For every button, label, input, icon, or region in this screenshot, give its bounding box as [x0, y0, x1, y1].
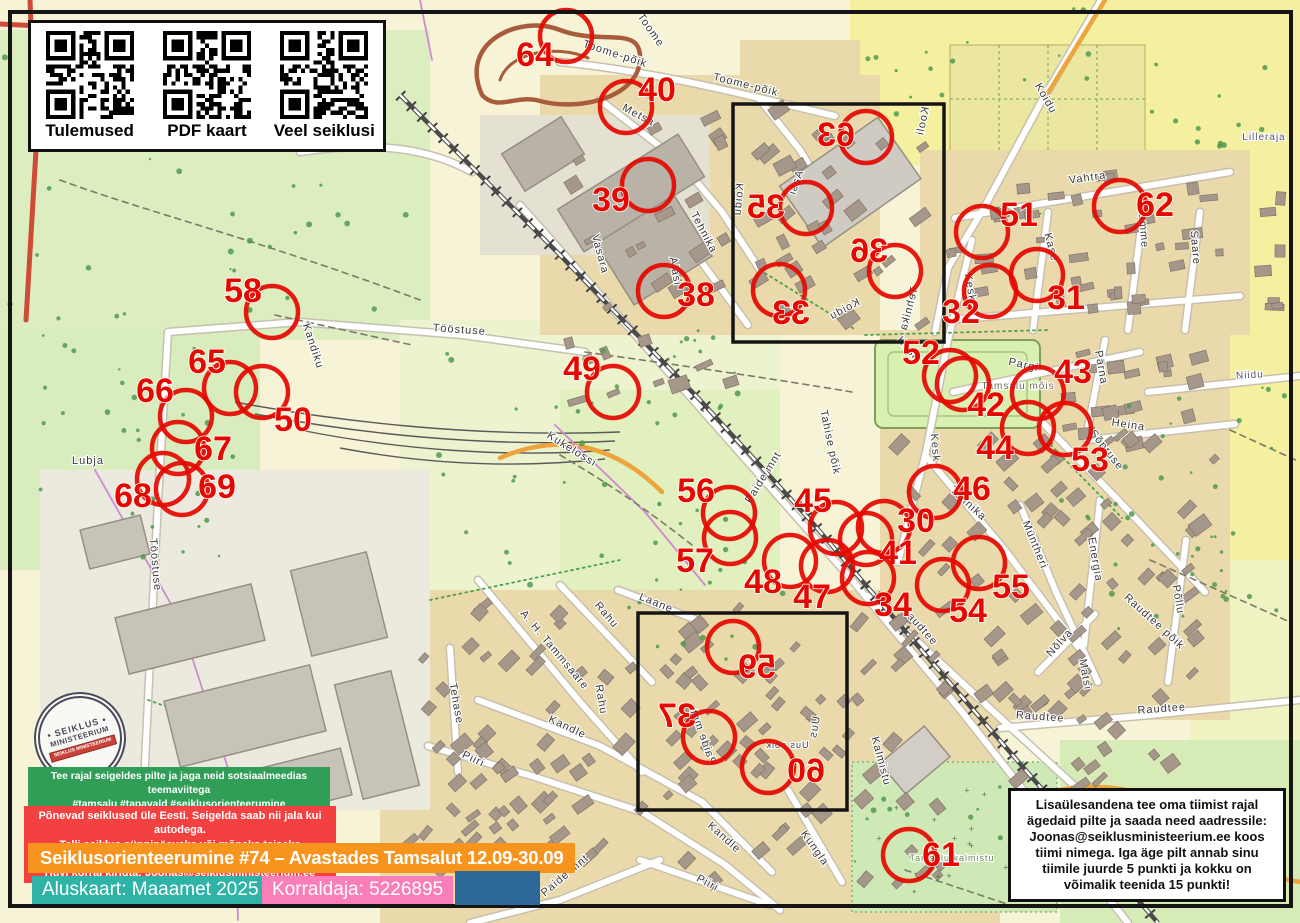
basemap-credit-bar: Aluskaart: Maaamet 2025: [32, 876, 269, 904]
control-number-51: 51: [1000, 196, 1038, 234]
control-number-38: 38: [677, 276, 715, 314]
social-line1: Tee rajal seigeldes pilte ja jaga neid s…: [32, 770, 326, 798]
control-number-39: 39: [592, 181, 630, 219]
control-number-65: 65: [188, 343, 226, 381]
control-number-60: 60: [787, 752, 825, 790]
blue-cover-rect: [455, 871, 540, 905]
control-number-43: 43: [1054, 353, 1092, 391]
qr-item-results: Tulemused: [36, 31, 144, 141]
control-number-36: 36: [850, 232, 888, 270]
control-number-68: 68: [114, 477, 152, 515]
qr-panel: Tulemused PDF kaart Veel seiklusi: [28, 20, 386, 152]
control-number-61: 61: [922, 836, 960, 874]
control-number-44: 44: [976, 429, 1014, 467]
control-number-67: 67: [194, 430, 232, 468]
control-number-49: 49: [563, 350, 601, 388]
qr-label-more-adventures: Veel seiklusi: [274, 121, 375, 141]
control-number-59: 59: [738, 648, 776, 686]
control-number-63: 63: [817, 116, 855, 154]
svg-text:+: +: [932, 815, 937, 825]
results-qr-code-icon: [46, 31, 134, 119]
event-title-bar: Seiklusorienteerumine #74 – Avastades Ta…: [28, 843, 575, 873]
control-number-35: 35: [747, 188, 785, 226]
control-number-55: 55: [992, 568, 1030, 606]
map-page: ++++++++++++++ ToomeToome-põikToome-põik…: [0, 0, 1300, 923]
control-number-41: 41: [879, 534, 917, 572]
pdf-map-qr-code-icon: [163, 31, 251, 119]
control-number-62: 62: [1136, 186, 1174, 224]
control-number-45: 45: [794, 482, 832, 520]
street-label-54: Lubja: [72, 455, 104, 467]
more-adventures-qr-code-icon: [280, 31, 368, 119]
svg-text:+: +: [876, 834, 881, 844]
control-number-34: 34: [874, 586, 912, 624]
svg-text:+: +: [982, 789, 987, 799]
qr-item-more-adventures: Veel seiklusi: [270, 31, 378, 141]
qr-label-results: Tulemused: [45, 121, 133, 141]
control-number-48: 48: [744, 563, 782, 601]
control-number-57: 57: [676, 542, 714, 580]
bonus-task-note: Lisaülesandena tee oma tiimist rajal äge…: [1008, 788, 1286, 902]
svg-text:+: +: [894, 803, 899, 813]
control-number-58: 58: [224, 272, 262, 310]
organizer-bar: Korraldaja: 5226895: [262, 876, 453, 904]
control-number-64: 64: [516, 36, 554, 74]
control-number-40: 40: [638, 71, 676, 109]
svg-text:+: +: [969, 824, 974, 834]
street-label-26: Niidu: [1236, 369, 1264, 381]
control-number-42: 42: [967, 386, 1005, 424]
control-number-66: 66: [136, 372, 174, 410]
promo-line1: Põnevad seiklused üle Eesti. Seigelda sa…: [28, 809, 332, 838]
qr-item-pdf-map: PDF kaart: [153, 31, 261, 141]
street-label-12: Lilleraja: [1242, 132, 1285, 143]
control-number-52: 52: [902, 334, 940, 372]
bonus-task-text: Lisaülesandena tee oma tiimist rajal äge…: [1017, 797, 1277, 892]
control-number-31: 31: [1047, 279, 1085, 317]
control-number-56: 56: [677, 472, 715, 510]
control-number-32: 32: [942, 293, 980, 331]
qr-label-pdf-map: PDF kaart: [167, 121, 246, 141]
control-number-47: 47: [793, 578, 831, 616]
control-number-54: 54: [949, 592, 987, 630]
street-label-20: Kesk: [928, 433, 942, 462]
control-number-50: 50: [274, 401, 312, 439]
control-number-46: 46: [953, 470, 991, 508]
control-number-37: 37: [658, 697, 696, 735]
control-number-69: 69: [198, 468, 236, 506]
control-number-53: 53: [1071, 441, 1109, 479]
svg-text:+: +: [967, 839, 972, 849]
svg-text:+: +: [964, 785, 969, 795]
control-number-33: 33: [772, 294, 810, 332]
